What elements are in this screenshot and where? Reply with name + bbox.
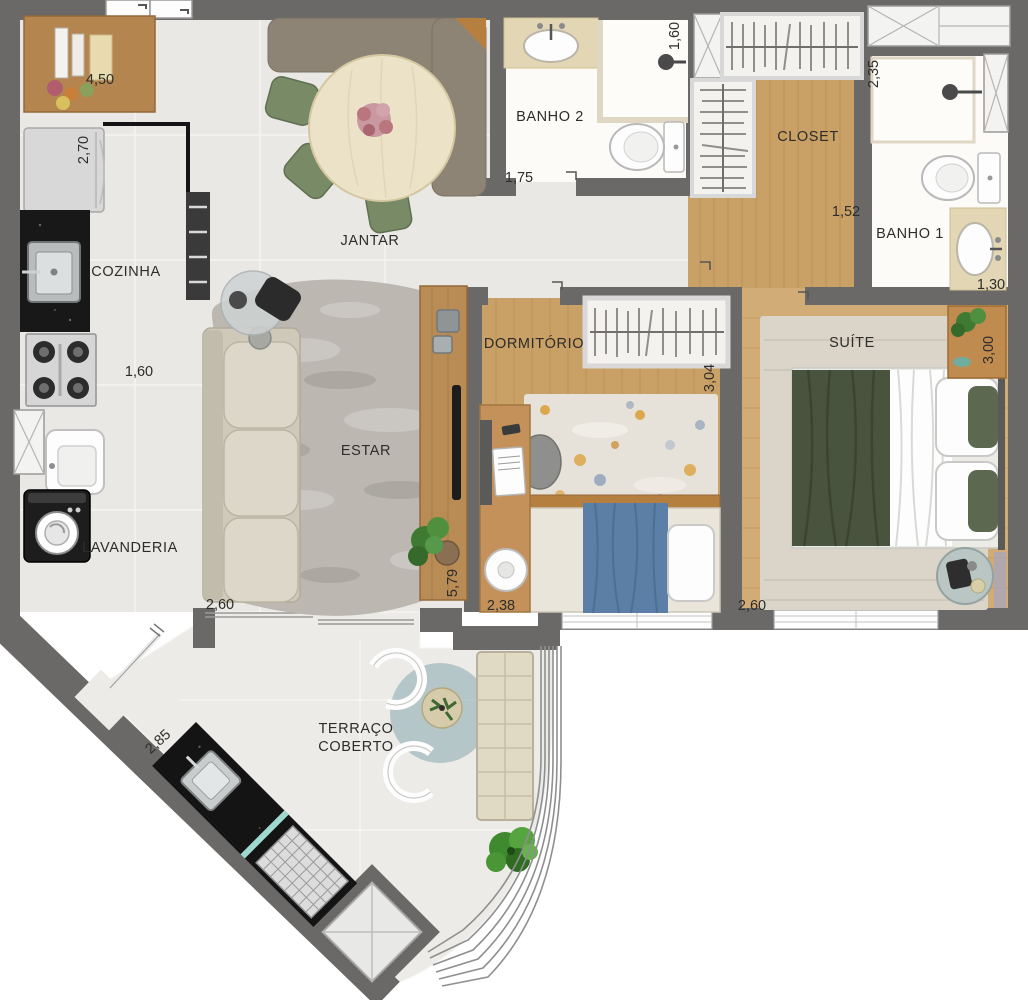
counter-bottle <box>72 34 84 76</box>
sofa <box>203 327 300 602</box>
bed-pillow <box>668 525 714 601</box>
banho1-sink <box>957 223 993 275</box>
single-bed <box>525 495 720 613</box>
wall-right <box>1008 20 1028 630</box>
accent-pillow <box>968 386 998 448</box>
table-flowers <box>357 103 393 137</box>
terrace-bench <box>477 652 533 820</box>
banho2-window <box>694 14 722 78</box>
label-banho1: BANHO 1 <box>876 226 944 242</box>
suite-nightstand <box>948 306 1006 378</box>
counter-bottle <box>55 28 68 78</box>
wall-left <box>0 20 20 638</box>
label-banho2: BANHO 2 <box>516 109 584 125</box>
dim-estar-width: 2,60 <box>206 597 234 613</box>
laptop-icon <box>492 447 525 496</box>
label-dormitorio: DORMITÓRIO <box>484 335 584 352</box>
suite-runner <box>994 552 1006 608</box>
living-area <box>203 271 467 616</box>
dim-dorm-width: 2,38 <box>487 598 515 614</box>
terrace-table <box>422 688 462 728</box>
label-jantar: JANTAR <box>341 233 400 249</box>
dim-banho1-depth: 2,35 <box>866 60 882 88</box>
dim-fridge-side: 2,70 <box>76 136 92 164</box>
fruit <box>56 96 70 110</box>
floor-plan: COZINHA JANTAR BANHO 2 CLOSET BANHO 1 ES… <box>0 0 1028 1000</box>
kitchen-window <box>14 410 44 474</box>
double-bed <box>792 366 1005 550</box>
banho2-toilet <box>610 122 684 172</box>
dim-banho2-depth: 1,60 <box>667 22 683 50</box>
desk <box>480 405 530 612</box>
fridge <box>24 128 104 212</box>
dim-dorm-length: 3,04 <box>702 364 718 392</box>
label-terraco-line1: TERRAÇO <box>318 721 393 737</box>
banho1-side-window <box>984 54 1008 132</box>
suite-room <box>760 306 1006 610</box>
tile-floor-hall <box>430 178 702 305</box>
dim-suite-length: 3,00 <box>981 336 997 364</box>
dim-closet-width: 1,52 <box>832 204 860 220</box>
label-cozinha: COZINHA <box>91 264 160 280</box>
label-terraco-line2: COBERTO <box>318 739 393 755</box>
label-estar: ESTAR <box>341 443 391 459</box>
dim-hall-width: 1,75 <box>505 170 533 186</box>
tub-faucet <box>49 463 55 469</box>
label-lavanderia: LAVANDERIA <box>82 540 178 556</box>
label-suite: SUÍTE <box>829 334 875 351</box>
wall-estar-door-post <box>193 608 215 648</box>
floor-plan-svg: COZINHA JANTAR BANHO 2 CLOSET BANHO 1 ES… <box>0 0 1028 1000</box>
banho1-top-window <box>868 6 1010 46</box>
dim-kitchen-width: 1,60 <box>125 364 153 380</box>
banho1-shower <box>872 58 974 142</box>
fruit <box>47 80 63 96</box>
suite-window <box>774 610 938 629</box>
dim-suite-width: 2,60 <box>738 598 766 614</box>
tv-icon <box>452 385 461 500</box>
headboard <box>998 366 1005 550</box>
suite-side-table <box>937 548 993 604</box>
dim-banho1-width: 1,30 <box>977 277 1005 293</box>
accent-pillow <box>968 470 998 532</box>
banho1-toilet <box>922 153 1000 203</box>
dim-kitchen-counter: 4,50 <box>86 72 114 88</box>
label-closet: CLOSET <box>777 129 839 145</box>
dim-estar-length: 5,79 <box>445 569 461 597</box>
